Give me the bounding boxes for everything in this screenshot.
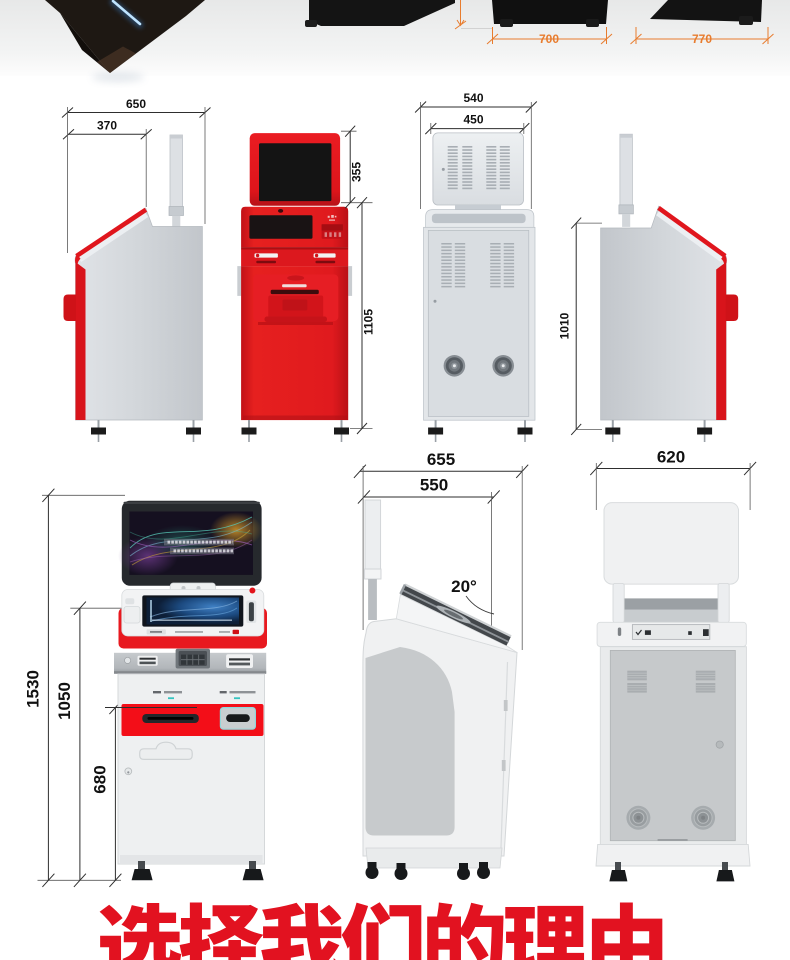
- svg-text:1050: 1050: [55, 682, 74, 720]
- svg-text:370: 370: [97, 119, 117, 133]
- svg-text:700: 700: [539, 32, 559, 46]
- svg-text:1105: 1105: [362, 309, 376, 335]
- svg-text:540: 540: [463, 91, 483, 105]
- svg-text:1010: 1010: [558, 312, 572, 339]
- svg-text:450: 450: [463, 113, 483, 127]
- svg-text:355: 355: [350, 162, 364, 182]
- svg-text:650: 650: [126, 97, 146, 111]
- svg-text:620: 620: [657, 448, 685, 467]
- svg-text:680: 680: [91, 765, 110, 793]
- svg-text:1530: 1530: [24, 670, 43, 708]
- svg-text:550: 550: [420, 476, 448, 495]
- svg-text:770: 770: [692, 32, 712, 46]
- svg-text:20°: 20°: [451, 577, 477, 596]
- svg-text:655: 655: [427, 450, 455, 469]
